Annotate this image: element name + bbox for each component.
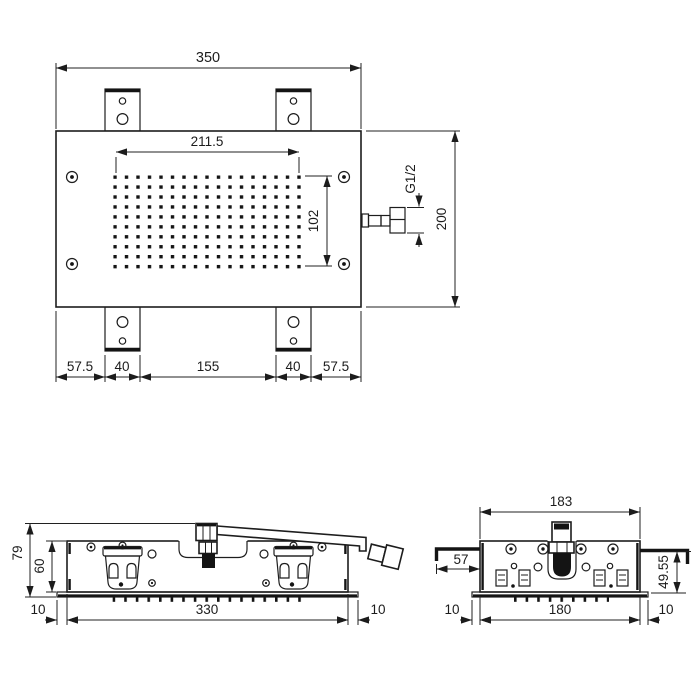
dim-right-offset-label: 10 — [370, 602, 385, 617]
technical-drawing-sheet: 350 211.5 102 G1/2 20 — [0, 0, 700, 700]
dim-chain-label-3: 155 — [197, 359, 220, 374]
dim-spray-field-width-label: 211.5 — [191, 134, 224, 149]
dim-end-overall-width-label: 183 — [550, 494, 573, 509]
side-view: 79 60 10 330 10 — [10, 524, 403, 626]
dim-bottom-chain: 57.5 40 155 40 57.5 — [56, 311, 361, 382]
dim-install-height-label: 49.55 — [656, 555, 671, 589]
top-view: 350 211.5 102 G1/2 20 — [56, 50, 460, 382]
dim-chain-label-1: 57.5 — [67, 359, 93, 374]
hose-fitting — [367, 541, 403, 569]
water-inlet-connector — [362, 208, 405, 234]
dim-body-height-label: 60 — [32, 558, 47, 573]
nozzle-field — [113, 175, 301, 268]
mounting-bracket-bottom-right — [276, 307, 311, 351]
dim-overall-width: 350 — [56, 50, 361, 129]
dim-arm-length-label: 57 — [453, 552, 468, 567]
dim-body-length-label: 330 — [196, 602, 219, 617]
dim-install-height: 49.55 — [651, 552, 691, 594]
mounting-bracket-top-left — [105, 89, 140, 131]
shower-head-drawing: 350 211.5 102 G1/2 20 — [0, 0, 700, 700]
dim-overall-depth-label: 200 — [434, 208, 449, 231]
dim-overall-height-label: 79 — [10, 545, 25, 560]
mounting-bracket-top-right — [276, 89, 311, 131]
face-plate-end — [472, 592, 648, 602]
dim-arm-length: 57 — [437, 552, 481, 574]
dim-chain-label-2: 40 — [114, 359, 129, 374]
mounting-bracket-bottom-left — [105, 307, 140, 351]
dim-chain-label-5: 57.5 — [323, 359, 349, 374]
dim-overall-depth: 200 — [366, 131, 460, 307]
dim-end-left-offset-label: 10 — [444, 602, 459, 617]
dim-chain-label-4: 40 — [285, 359, 300, 374]
dim-left-offset-label: 10 — [30, 602, 45, 617]
dim-spray-field-height-label: 102 — [306, 210, 321, 233]
dim-thread: G1/2 — [403, 164, 424, 247]
dim-body-height: 60 — [32, 541, 66, 592]
dim-body-width-label: 180 — [549, 602, 572, 617]
dim-overall-width-label: 350 — [196, 50, 220, 66]
dim-end-right-offset-label: 10 — [658, 602, 673, 617]
end-view: 183 57 49.55 10 180 10 — [437, 494, 692, 625]
thread-label: G1/2 — [403, 164, 418, 193]
face-plate-side — [57, 592, 358, 602]
